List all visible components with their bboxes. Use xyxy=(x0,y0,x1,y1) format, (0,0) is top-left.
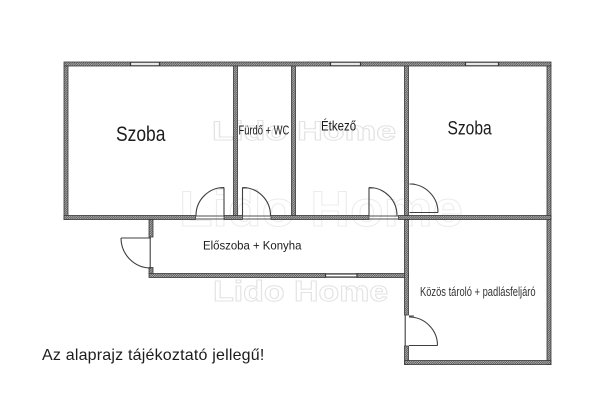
svg-text:Közös tároló + padlásfeljáró: Közös tároló + padlásfeljáró xyxy=(420,286,536,300)
svg-text:Fürdő + WC: Fürdő + WC xyxy=(239,124,290,138)
svg-text:Szoba: Szoba xyxy=(448,117,492,139)
svg-text:Szoba: Szoba xyxy=(116,124,166,147)
svg-text:Lido Home: Lido Home xyxy=(213,274,388,307)
svg-text:Étkező: Étkező xyxy=(321,118,356,134)
svg-text:Előszoba + Konyha: Előszoba + Konyha xyxy=(203,239,302,252)
svg-text:Az alaprajz tájékoztató jelleg: Az alaprajz tájékoztató jellegű! xyxy=(42,347,265,364)
svg-text:Lido Home: Lido Home xyxy=(179,181,463,237)
